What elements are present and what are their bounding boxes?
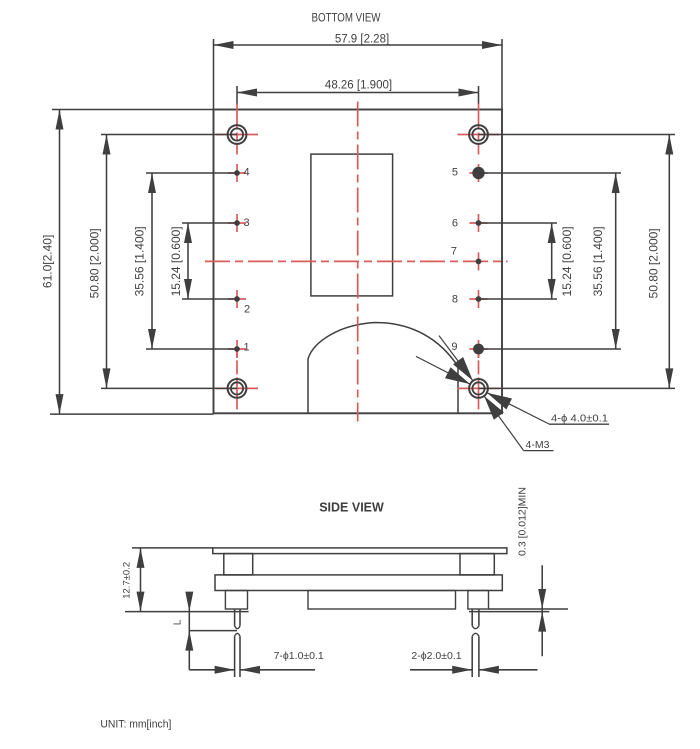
svg-text:7-ϕ1.0±0.1: 7-ϕ1.0±0.1 xyxy=(274,650,324,662)
svg-text:4-M3: 4-M3 xyxy=(526,439,550,451)
svg-text:57.9 [2.28]: 57.9 [2.28] xyxy=(335,34,389,46)
svg-text:L: L xyxy=(173,619,184,625)
svg-text:UNIT: mm[inch]: UNIT: mm[inch] xyxy=(100,719,171,731)
svg-text:4: 4 xyxy=(244,167,250,179)
svg-text:2-ϕ2.0±0.1: 2-ϕ2.0±0.1 xyxy=(411,650,461,662)
svg-text:0.3 [0.012]MIN: 0.3 [0.012]MIN xyxy=(517,487,529,556)
svg-text:5: 5 xyxy=(452,167,458,179)
svg-text:1: 1 xyxy=(244,342,250,354)
svg-text:50.80 [2.000]: 50.80 [2.000] xyxy=(88,228,102,298)
svg-text:35.56 [1.400]: 35.56 [1.400] xyxy=(133,226,147,296)
svg-text:7: 7 xyxy=(451,246,457,258)
svg-text:50.80 [2.000]: 50.80 [2.000] xyxy=(646,228,660,298)
svg-text:2: 2 xyxy=(244,304,250,316)
svg-text:35.56 [1.400]: 35.56 [1.400] xyxy=(591,226,605,296)
svg-text:4-ϕ 4.0±0.1: 4-ϕ 4.0±0.1 xyxy=(551,413,608,425)
svg-text:BOTTOM VIEW: BOTTOM VIEW xyxy=(312,13,381,25)
svg-text:6: 6 xyxy=(452,218,458,230)
svg-text:12.7±0.2: 12.7±0.2 xyxy=(122,562,133,599)
svg-text:48.26 [1.900]: 48.26 [1.900] xyxy=(325,80,392,92)
svg-text:15.24 [0.600]: 15.24 [0.600] xyxy=(560,226,574,296)
svg-text:SIDE VIEW: SIDE VIEW xyxy=(319,501,384,515)
svg-text:61.0[2.40]: 61.0[2.40] xyxy=(41,235,55,288)
svg-text:8: 8 xyxy=(452,294,458,306)
svg-text:15.24 [0.600]: 15.24 [0.600] xyxy=(169,226,183,296)
svg-text:9: 9 xyxy=(451,341,457,353)
svg-text:3: 3 xyxy=(244,217,250,229)
